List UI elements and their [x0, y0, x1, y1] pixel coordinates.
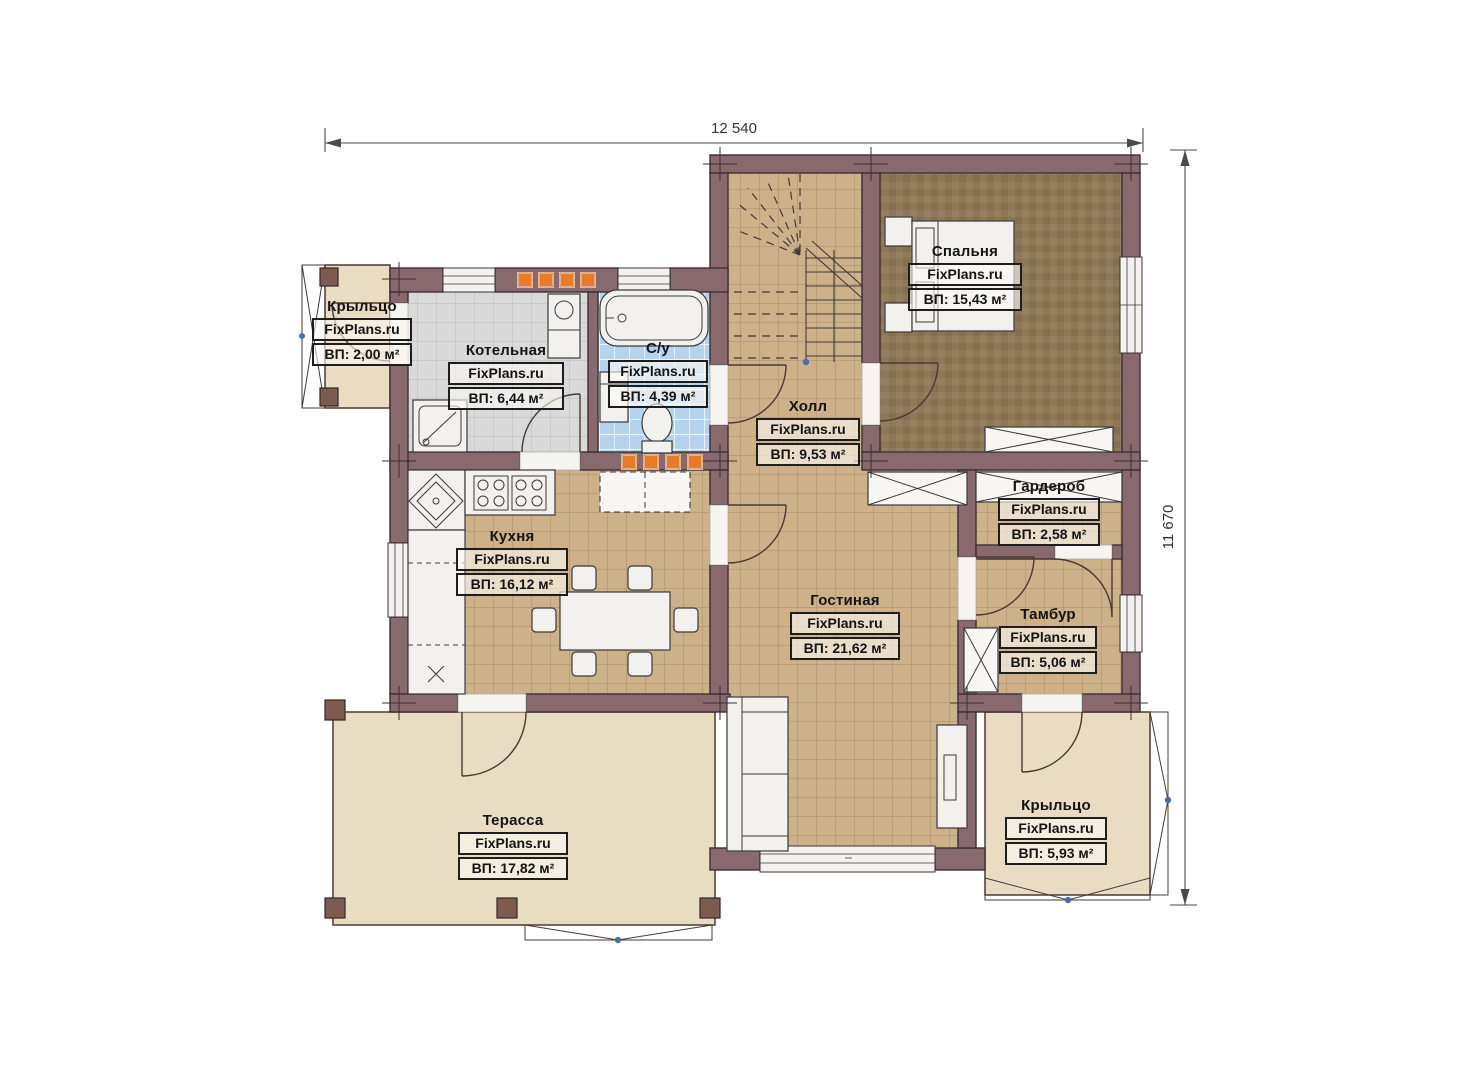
- washing-machine: [600, 372, 628, 422]
- kitchen-sink: [408, 470, 465, 530]
- shower-tray: [413, 400, 467, 452]
- tv-stand: [937, 725, 967, 828]
- porch-post: [320, 388, 338, 406]
- kitchen-wall-cabinets: [600, 472, 690, 512]
- dimension-height-label: 11 670: [1160, 505, 1177, 550]
- terrace-post: [325, 700, 345, 720]
- tambour-window: [1120, 595, 1142, 652]
- hall-cabinet: [964, 628, 998, 692]
- dimension-width-label: 12 540: [711, 120, 757, 137]
- wardrobe-closet: [976, 472, 1122, 502]
- living-closet: [868, 472, 967, 505]
- dimension-top: 12 540: [325, 120, 1143, 152]
- bathtub: [600, 290, 708, 346]
- hall-floor: [728, 173, 862, 470]
- porch-post: [320, 268, 338, 286]
- terrace-post: [325, 898, 345, 918]
- floor-plan-drawing: 12 540 11 670: [0, 0, 1473, 1080]
- toilet: [642, 404, 672, 453]
- porch-right-floor: [985, 712, 1150, 895]
- sofa: [727, 697, 788, 851]
- kitchen-window: [388, 543, 410, 617]
- terrace-floor: [333, 712, 715, 925]
- dimension-right: 11 670: [1160, 150, 1197, 905]
- bathroom-window: [618, 268, 670, 292]
- floor-plan-canvas: 12 540 11 670 Крыльцо FixPlans.ru ВП: 2,…: [0, 0, 1473, 1080]
- kitchen-counter: [408, 530, 465, 694]
- terrace-post: [497, 898, 517, 918]
- kitchen-stove: [465, 470, 555, 515]
- boiler-window: [443, 268, 495, 292]
- boiler-unit: [548, 294, 580, 358]
- bedroom-window: [1120, 257, 1142, 353]
- terrace-post: [700, 898, 720, 918]
- bedroom-closet: [985, 427, 1113, 452]
